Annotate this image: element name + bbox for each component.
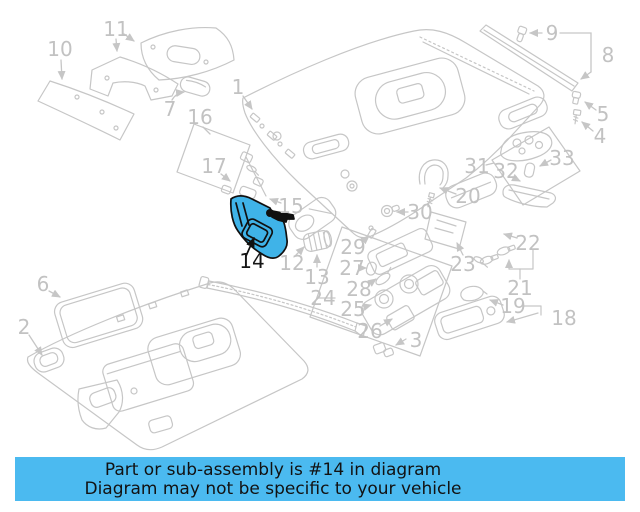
part-label-30: 30 — [407, 200, 432, 224]
exploded-parts-diagram: 1234567891011121314151617181920212223242… — [0, 0, 640, 512]
part-label-16: 16 — [187, 105, 212, 129]
part-label-18: 18 — [551, 306, 576, 330]
dome-light-housing — [501, 132, 552, 161]
sunroof-opening-bottom — [145, 315, 243, 388]
part-label-12: 12 — [279, 251, 304, 275]
part-label-5: 5 — [597, 102, 610, 126]
part-label-2: 2 — [18, 315, 31, 339]
banner-line-1: Part or sub-assembly is #14 in diagram — [15, 461, 531, 480]
part-number-labels: 1234567891011121314151617181920212223242… — [18, 17, 615, 352]
part-label-32: 32 — [493, 159, 518, 183]
sunroof-opening-top — [351, 54, 468, 137]
corner-handle-slot — [496, 94, 550, 131]
part-label-6: 6 — [37, 272, 50, 296]
part-label-23: 23 — [450, 252, 475, 276]
part-label-33: 33 — [549, 146, 574, 170]
bulb-33 — [524, 162, 536, 178]
banner-line-2: Diagram may not be specific to your vehi… — [15, 480, 531, 499]
part-label-21: 21 — [507, 276, 532, 300]
part-label-4: 4 — [594, 124, 607, 148]
part-label-26: 26 — [357, 319, 382, 343]
visor-mount-hardware — [177, 124, 448, 253]
disclaimer-banner: Part or sub-assembly is #14 in diagram D… — [15, 457, 625, 501]
screw-22a — [479, 253, 499, 266]
part-label-22: 22 — [515, 231, 540, 255]
clip-9 — [515, 26, 528, 43]
part-label-20: 20 — [455, 184, 480, 208]
screw-22b — [496, 244, 516, 257]
part-label-15: 15 — [278, 194, 303, 218]
part-label-9: 9 — [546, 21, 559, 45]
bulb-28 — [374, 267, 396, 286]
part-label-3: 3 — [410, 328, 423, 352]
part-label-29: 29 — [340, 235, 365, 259]
part-label-1: 1 — [232, 75, 245, 99]
clip-3 — [373, 340, 394, 360]
knurled-knob-12 — [302, 229, 333, 252]
part-label-31: 31 — [464, 154, 489, 178]
part-label-17: 17 — [201, 154, 226, 178]
handle-recess — [302, 132, 351, 160]
part-label-11: 11 — [103, 17, 128, 41]
part-label-28: 28 — [346, 277, 371, 301]
part-label-14: 14 — [239, 249, 264, 273]
trim-cap-7 — [179, 75, 212, 98]
sunroof-glass-6 — [52, 281, 145, 350]
grab-handle-20 — [419, 160, 448, 188]
part-label-8: 8 — [602, 43, 615, 67]
bulb-19 — [461, 286, 483, 300]
pillar-flap — [78, 380, 123, 429]
part-label-24: 24 — [310, 286, 335, 310]
screw-4 — [572, 110, 581, 125]
parts-diagram-viewer: 1234567891011121314151617181920212223242… — [0, 0, 640, 512]
roof-molding-assembly — [480, 25, 581, 124]
headliner-bottom-view — [27, 281, 307, 450]
bulb-27 — [365, 261, 377, 276]
part-label-10: 10 — [47, 37, 72, 61]
clip-5 — [571, 91, 581, 104]
part-label-7: 7 — [164, 97, 177, 121]
grommet-30 — [382, 206, 393, 217]
grab-handle-left — [31, 345, 66, 374]
